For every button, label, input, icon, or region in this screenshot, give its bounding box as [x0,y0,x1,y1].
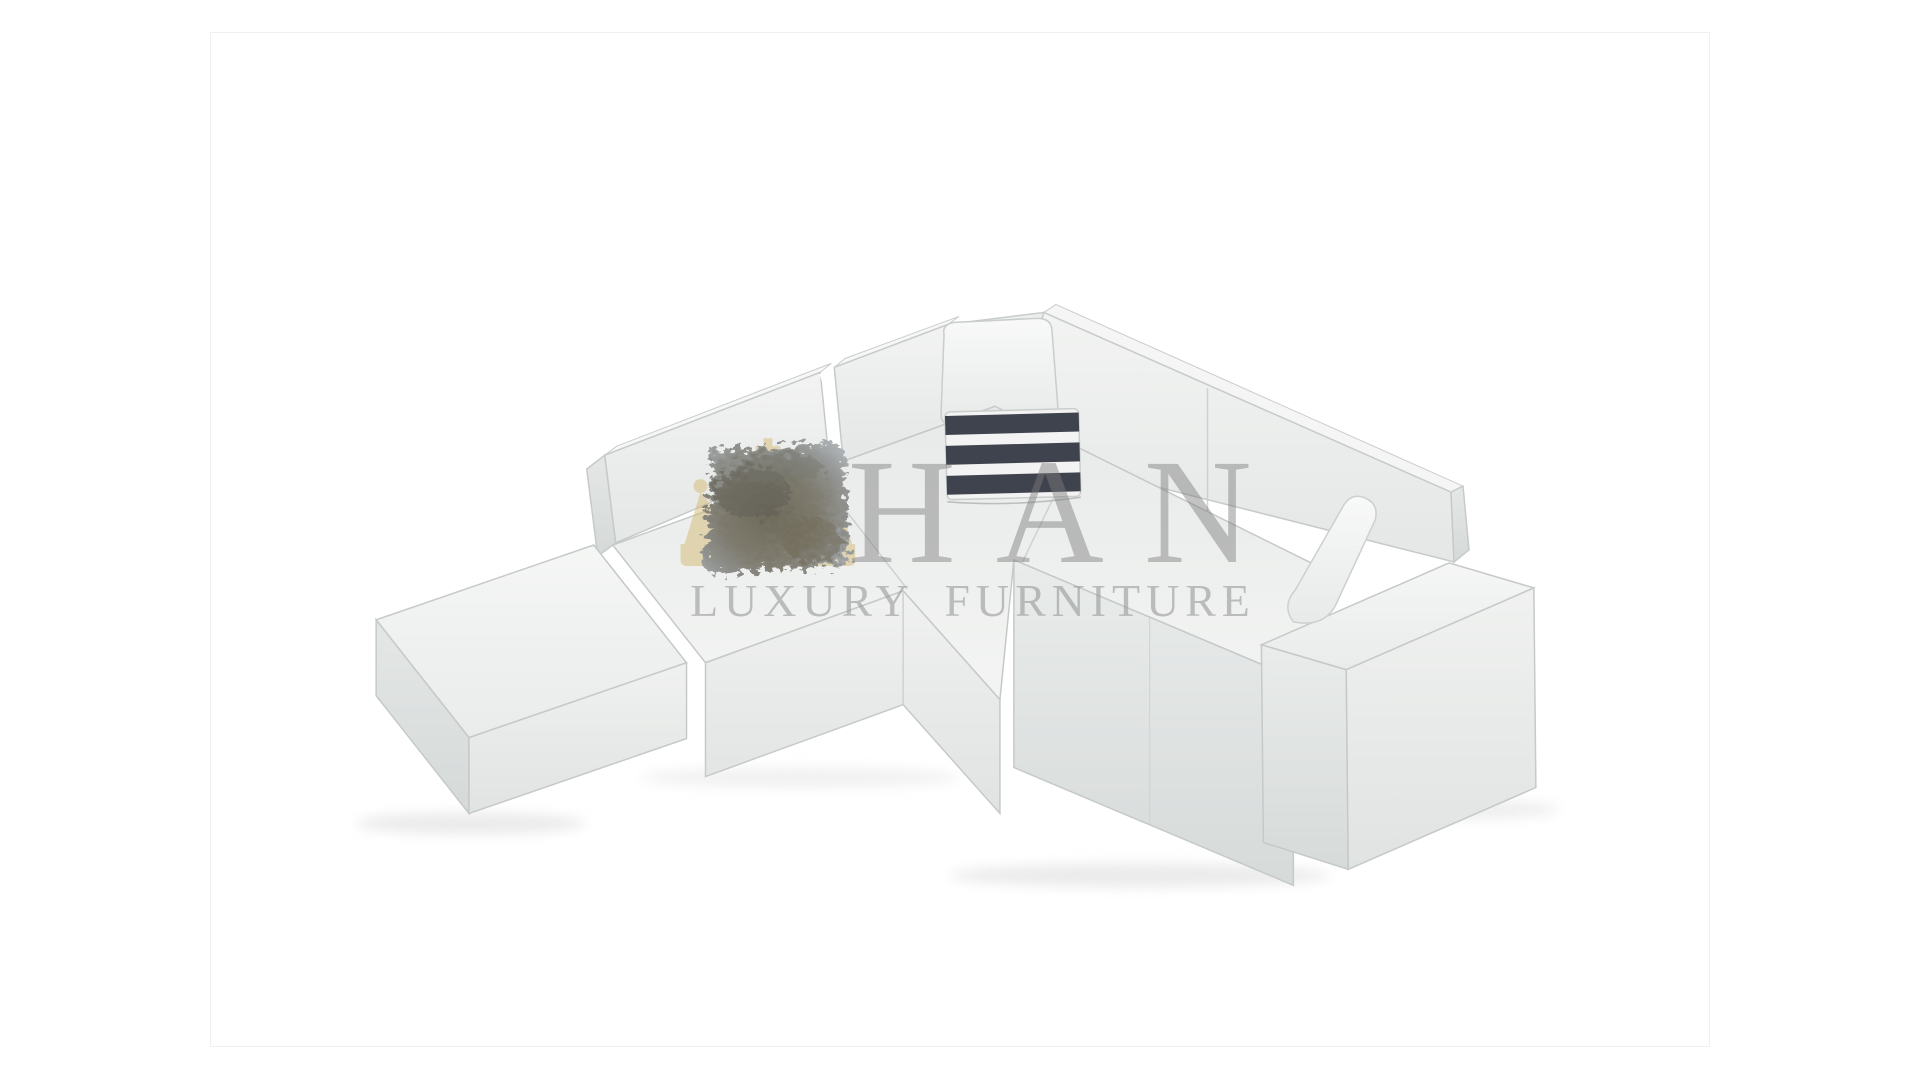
right-back-end-cap [1451,486,1469,562]
product-photo-frame: HAN LUXURY FURNITURE [210,32,1710,1047]
fur-pillow [705,443,849,574]
watermark-tagline-text: LUXURY FURNITURE [690,575,1256,626]
sofa-product-photo: HAN LUXURY FURNITURE [211,33,1709,1046]
ottoman-module [376,545,686,813]
watermark-brand-text: HAN [848,430,1292,595]
